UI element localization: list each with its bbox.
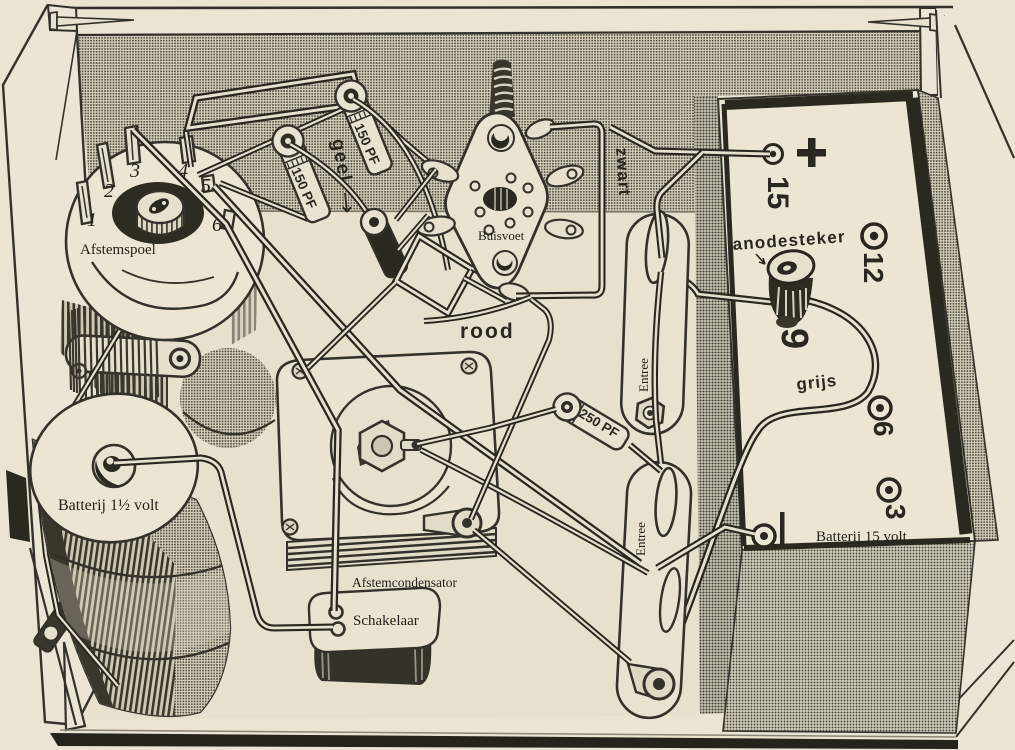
svg-text:2: 2 <box>104 180 114 202</box>
svg-text:9: 9 <box>773 328 815 349</box>
svg-text:3: 3 <box>129 160 140 182</box>
svg-text:6: 6 <box>868 421 899 437</box>
svg-text:zwart: zwart <box>612 147 634 197</box>
svg-text:rood: rood <box>460 320 515 343</box>
svg-text:Afstemspoel: Afstemspoel <box>80 242 156 258</box>
svg-text:5: 5 <box>201 175 211 197</box>
svg-text:Schakelaar: Schakelaar <box>353 613 419 629</box>
svg-text:Batterij 15 volt: Batterij 15 volt <box>816 529 908 545</box>
svg-text:1: 1 <box>87 209 97 231</box>
svg-text:Batterij 1½ volt: Batterij 1½ volt <box>58 497 159 514</box>
svg-text:12: 12 <box>858 252 889 283</box>
svg-text:Entree: Entree <box>636 358 651 392</box>
svg-text:3: 3 <box>880 504 911 520</box>
svg-text:Buisvoet: Buisvoet <box>478 228 525 243</box>
svg-text:Entree: Entree <box>633 522 648 556</box>
svg-text:15: 15 <box>761 176 794 209</box>
